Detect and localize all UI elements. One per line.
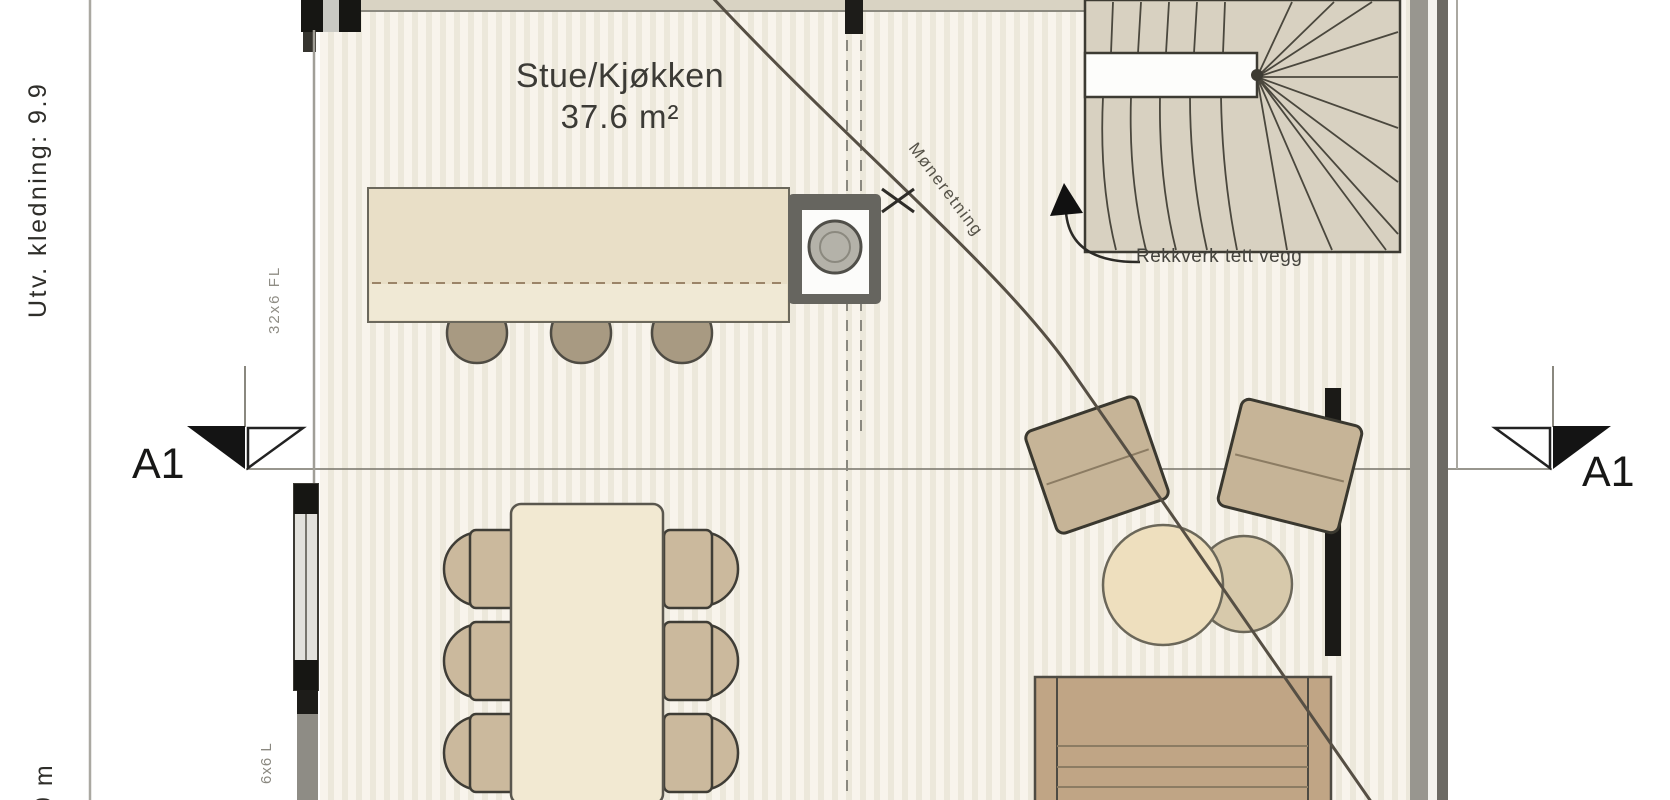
armchair-right <box>1217 398 1364 535</box>
section-marker-left-symbol <box>187 426 303 469</box>
section-marker-left-label: A1 <box>132 440 185 489</box>
stair-arrow-head <box>1050 183 1083 216</box>
cladding-dimension-label: Utv. kledning: 9.9 <box>24 82 53 318</box>
stair-railing-wall <box>1085 53 1257 97</box>
room-name: Stue/Kjøkken <box>430 56 810 97</box>
stair-newel <box>1251 69 1263 81</box>
section-marker-right-label: A1 <box>1582 448 1635 497</box>
wall-note-upper: 32x6 FL <box>266 266 283 334</box>
kitchen-island <box>368 188 881 363</box>
top-window <box>301 0 361 52</box>
x-mark <box>882 189 914 212</box>
room-area: 37.6 m² <box>430 97 810 137</box>
railing-note: Rekkverk tett vegg <box>1136 246 1302 268</box>
cladding-dimension-bottom: 9 m <box>30 763 59 800</box>
lounge-group <box>1024 395 1364 800</box>
dining-set <box>444 504 738 800</box>
floor-plan: Stue/Kjøkken 37.6 m² A1 A1 Rekkverk tett… <box>0 0 1670 800</box>
coffee-table <box>1103 525 1223 645</box>
staircase <box>1050 0 1400 262</box>
dashed-wall-lines <box>847 0 861 800</box>
dining-table <box>511 504 663 800</box>
sofa <box>1035 677 1331 800</box>
cooktop-unit <box>788 194 881 304</box>
wall-note-lower: 6x6 L <box>258 742 275 784</box>
room-label: Stue/Kjøkken 37.6 m² <box>430 56 810 138</box>
plan-drawing <box>0 0 1670 800</box>
left-wall <box>294 30 318 800</box>
armchair-left <box>1024 395 1171 536</box>
